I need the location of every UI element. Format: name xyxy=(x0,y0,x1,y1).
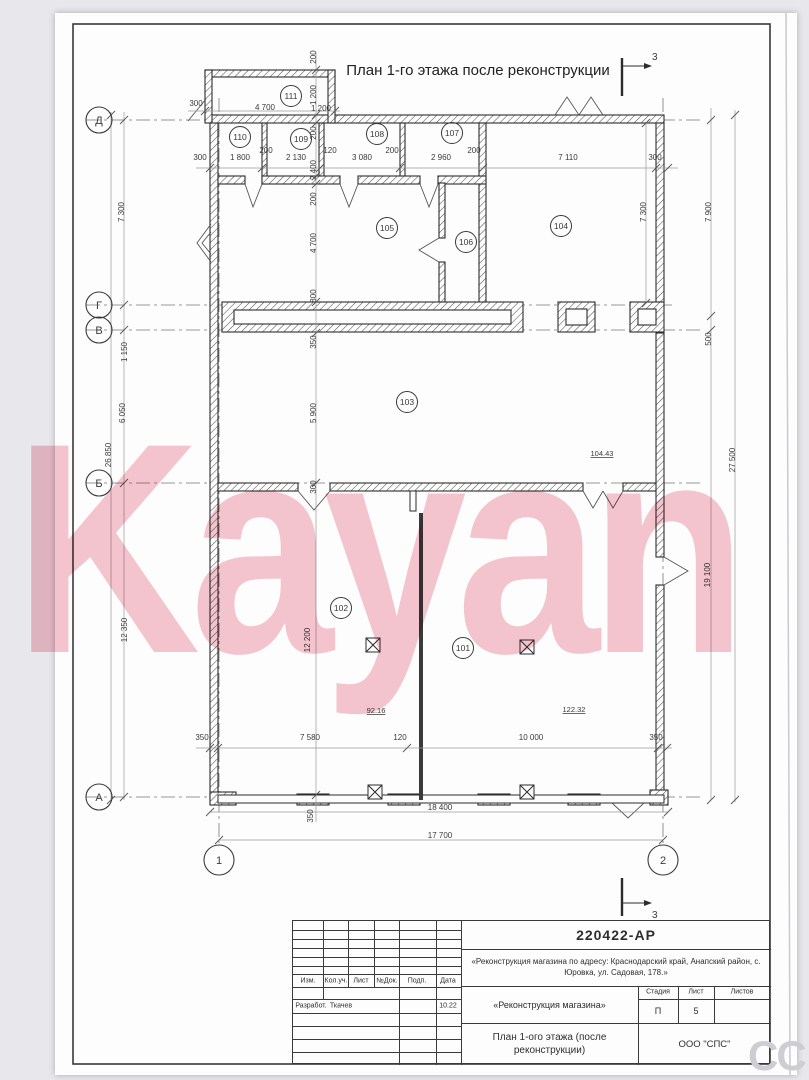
col-podp: Подп. xyxy=(408,978,427,985)
project-name: «Реконструкция магазина» xyxy=(461,986,638,1023)
divider xyxy=(293,957,461,958)
room-number: 104 xyxy=(554,221,568,231)
dimension-label: 17 700 xyxy=(428,831,453,840)
dimension-label: 7 110 xyxy=(558,153,578,162)
dimension-label: 350 xyxy=(309,335,318,349)
col-dok: №Док. xyxy=(376,978,397,985)
col-koluch: Кол.уч. xyxy=(325,978,348,985)
dimension-label: 7 300 xyxy=(639,201,648,222)
sheet-number: 5 xyxy=(693,1006,698,1016)
dimension-label: 19 100 xyxy=(703,562,712,587)
col-izm: Изм. xyxy=(301,978,316,985)
dimension-label: 3 080 xyxy=(352,153,373,162)
divider xyxy=(293,999,461,1000)
stage-value: П xyxy=(655,1006,661,1016)
room-number: 108 xyxy=(370,129,384,139)
developed-label: Разработ. xyxy=(295,1003,326,1010)
room-number: 105 xyxy=(380,223,394,233)
dimension-label: 1 800 xyxy=(230,153,251,162)
walls xyxy=(205,70,668,805)
dimension-label: 800 xyxy=(309,289,318,303)
dimension-label: 350 xyxy=(306,809,315,823)
dimension-label: 300 xyxy=(309,480,318,494)
axis-label: Г xyxy=(96,300,102,312)
room-area-label: 122.32 xyxy=(563,705,586,714)
divider xyxy=(293,1039,461,1040)
divider xyxy=(678,986,679,1023)
dimension-label: 300 xyxy=(648,153,662,162)
dimension-label: 1 200 xyxy=(309,84,318,105)
room-area-label: 92.16 xyxy=(367,706,386,715)
room-area-label: 104.43 xyxy=(591,449,614,458)
axis-label: Б xyxy=(95,478,102,490)
doc-number: 220422-АР xyxy=(461,921,771,949)
doc-date: 10.22 xyxy=(439,1003,457,1010)
room-number: 110 xyxy=(233,132,247,142)
columns xyxy=(366,638,534,799)
dimension-label: 120 xyxy=(393,733,407,742)
dimension-label: 7 900 xyxy=(704,201,713,222)
divider xyxy=(293,966,461,967)
floor-plan-canvas: План 1-го этажа после реконструкции 3 3 … xyxy=(0,0,809,1080)
dimension-label: 200 xyxy=(309,50,318,64)
dimension-label: 200 xyxy=(309,192,318,206)
sheet-name: План 1-ого этажа (после реконструкции) xyxy=(465,1023,634,1065)
divider xyxy=(714,986,715,1023)
divider xyxy=(293,948,461,949)
divider xyxy=(436,921,437,1065)
dimension-label: 350 xyxy=(195,733,209,742)
dimension-label: 200 xyxy=(385,146,399,155)
divider xyxy=(293,1013,461,1014)
axis-label: В xyxy=(95,325,102,337)
room-number: 102 xyxy=(334,603,348,613)
divider xyxy=(293,987,461,988)
dimension-label: 4 700 xyxy=(255,103,276,112)
dimension-label: 300 xyxy=(189,99,203,108)
divider xyxy=(293,1052,461,1053)
divider xyxy=(293,974,461,975)
room-number: 103 xyxy=(400,397,414,407)
room-number: 101 xyxy=(456,643,470,653)
dimension-label: 2 400 xyxy=(309,159,318,180)
dimension-label: 2 130 xyxy=(286,153,307,162)
section-mark-bottom xyxy=(622,878,652,916)
sheet-frame xyxy=(73,13,790,1075)
dimension-label: 200 xyxy=(467,146,481,155)
developer-name: Ткачев xyxy=(330,1003,352,1010)
col-data: Дата xyxy=(440,978,456,985)
dimension-label: 1 150 xyxy=(120,341,129,362)
dimension-label: 12 350 xyxy=(120,617,129,642)
dimension-label: 300 xyxy=(193,153,207,162)
dimension-label: 4 700 xyxy=(309,232,318,253)
section-mark-top-label: 3 xyxy=(652,52,658,63)
divider xyxy=(293,939,461,940)
dimension-label: 6 050 xyxy=(118,402,127,423)
dimension-label: 12 200 xyxy=(303,627,312,652)
plan-title: План 1-го этажа после реконструкции xyxy=(346,62,609,79)
dimension-label: 18 400 xyxy=(428,803,453,812)
dimension-label: 350 xyxy=(649,733,663,742)
dimension-label: 27 500 xyxy=(728,447,737,472)
dimension-label: 2 960 xyxy=(431,153,452,162)
axis-label: А xyxy=(95,792,103,804)
dimension-label: 200 xyxy=(259,146,273,155)
dimension-label: 120 xyxy=(323,146,337,155)
divider xyxy=(399,921,400,1065)
axis-lines xyxy=(86,98,700,843)
axis-label: Д xyxy=(95,115,103,127)
col-list: Лист xyxy=(353,978,368,985)
room-number: 111 xyxy=(285,91,298,101)
dimension-label: 26 850 xyxy=(104,442,113,467)
dimension-label: 7 300 xyxy=(117,201,126,222)
divider xyxy=(293,930,461,931)
stage-label: Стадия xyxy=(646,989,670,996)
sheet-label: Лист xyxy=(688,989,703,996)
room-number: 106 xyxy=(459,237,473,247)
dimension-label: 200 xyxy=(309,126,318,140)
title-block: Изм. Кол.уч. Лист №Док. Подп. Дата Разра… xyxy=(292,920,770,1064)
divider xyxy=(638,999,771,1000)
company-name: ООО "СПС" xyxy=(638,1023,771,1065)
dimension-label: 5 900 xyxy=(309,402,318,423)
dimension-label: 500 xyxy=(704,332,713,346)
dimension-label: 10 000 xyxy=(519,733,544,742)
section-mark-top xyxy=(622,58,652,96)
room-number: 109 xyxy=(294,134,308,144)
axis-label: 1 xyxy=(216,855,222,867)
sheets-label: Листов xyxy=(731,989,754,996)
project-address: «Реконструкция магазина по адресу: Красн… xyxy=(465,949,767,986)
divider xyxy=(293,1026,461,1027)
dimension-label: 7 580 xyxy=(300,733,321,742)
thin-walls xyxy=(218,491,664,803)
room-number: 107 xyxy=(445,128,459,138)
axis-label: 2 xyxy=(660,855,666,867)
